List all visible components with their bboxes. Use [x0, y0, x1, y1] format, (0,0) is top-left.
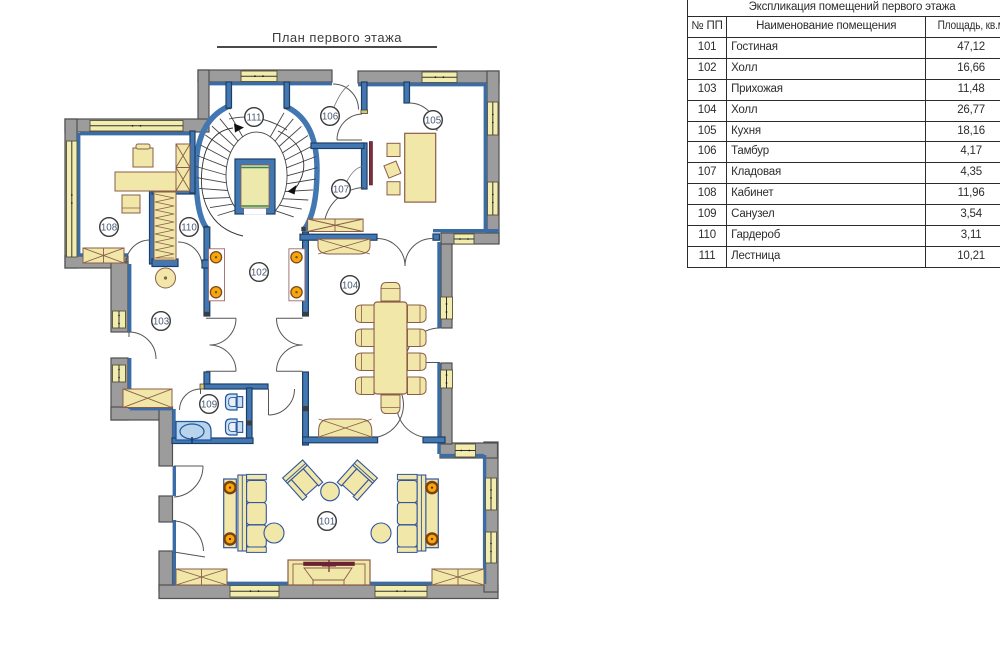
svg-text:102: 102 — [251, 268, 267, 279]
svg-text:111: 111 — [247, 113, 262, 124]
svg-text:109: 109 — [201, 400, 217, 411]
svg-text:104: 104 — [342, 281, 359, 292]
svg-text:110: 110 — [181, 223, 197, 234]
svg-text:101: 101 — [319, 517, 335, 528]
svg-text:103: 103 — [153, 317, 170, 328]
svg-text:107: 107 — [333, 185, 349, 196]
svg-text:105: 105 — [425, 116, 442, 127]
svg-text:108: 108 — [101, 223, 118, 234]
svg-text:106: 106 — [322, 112, 339, 123]
